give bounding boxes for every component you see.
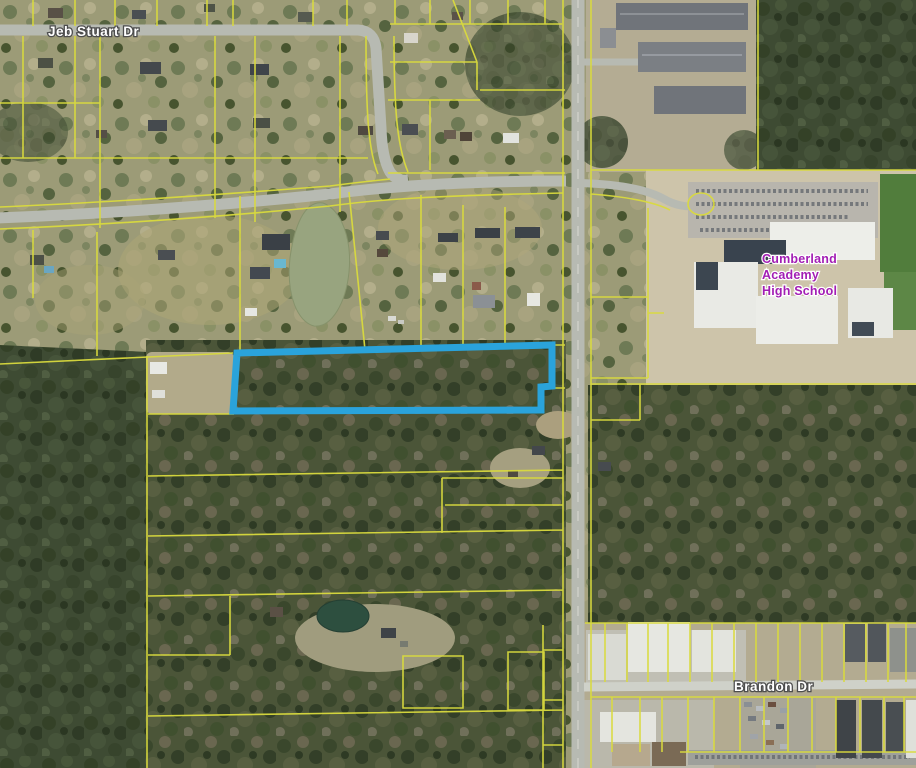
school-label-line3: High School	[762, 284, 837, 298]
street-label-brandon: Brandon Dr	[734, 679, 813, 694]
clearing-west-of-parcel	[146, 352, 234, 414]
street-label-jeb-stuart: Jeb Stuart Dr	[48, 24, 140, 39]
map-canvas[interactable]: Jeb Stuart Dr Brandon Dr Cumberland Acad…	[0, 0, 916, 768]
tree-patch	[465, 12, 575, 116]
aerial-map[interactable]: Jeb Stuart Dr Brandon Dr Cumberland Acad…	[0, 0, 916, 768]
pond-small	[317, 600, 369, 632]
school-label-line1: Cumberland	[762, 252, 837, 266]
forest-west-block	[0, 345, 148, 768]
sports-field	[880, 174, 916, 272]
clearing	[35, 265, 145, 335]
school-label-line2: Academy	[762, 268, 819, 282]
school-building	[756, 296, 838, 344]
clearing	[118, 215, 302, 325]
forest-northeast	[754, 0, 916, 172]
